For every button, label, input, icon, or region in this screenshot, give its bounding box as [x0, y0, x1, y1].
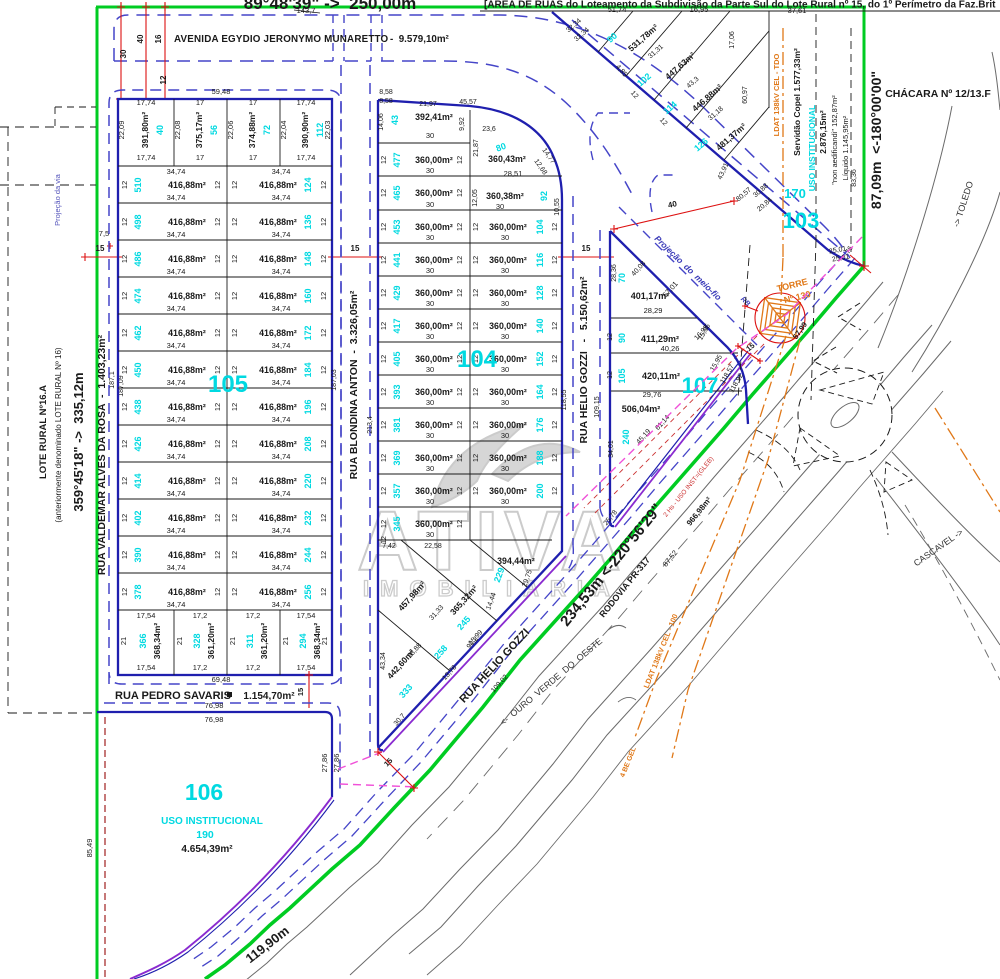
svg-text:114: 114 — [661, 99, 679, 116]
svg-text:104: 104 — [535, 219, 545, 234]
svg-text:12: 12 — [120, 366, 129, 374]
svg-text:105: 105 — [617, 368, 627, 383]
svg-text:416,88m²: 416,88m² — [259, 291, 297, 301]
svg-text:RUA BLONDINA ANTON - 3.326,0: RUA BLONDINA ANTON - 3.326,05m² — [348, 290, 360, 479]
svg-text:10,55: 10,55 — [554, 198, 561, 216]
svg-text:[ÁREA DE RUAS do Loteamento da: [ÁREA DE RUAS do Loteamento da Subdivisã… — [484, 0, 996, 11]
svg-text:30: 30 — [426, 299, 434, 308]
svg-text:17,74: 17,74 — [297, 98, 316, 107]
svg-text:411,29m²: 411,29m² — [641, 334, 679, 344]
svg-text:17,54: 17,54 — [297, 611, 316, 620]
svg-text:-> TOLEDO: -> TOLEDO — [951, 180, 975, 228]
svg-text:89°48'39" -> 250,00m: 89°48'39" -> 250,00m — [244, 0, 417, 13]
svg-text:34,74: 34,74 — [167, 230, 186, 239]
svg-text:416,88m²: 416,88m² — [168, 476, 206, 486]
svg-text:328: 328 — [192, 633, 202, 648]
svg-text:17,74: 17,74 — [137, 153, 156, 162]
svg-text:87,52: 87,52 — [661, 548, 680, 568]
svg-text:22,04: 22,04 — [279, 121, 288, 140]
svg-text:12: 12 — [455, 156, 464, 164]
svg-text:12: 12 — [471, 421, 480, 429]
svg-text:21: 21 — [175, 637, 184, 645]
svg-text:220: 220 — [303, 473, 313, 488]
svg-text:30: 30 — [426, 200, 434, 209]
svg-text:966,98m²: 966,98m² — [685, 495, 714, 528]
svg-text:34,74: 34,74 — [272, 378, 291, 387]
svg-text:450: 450 — [133, 362, 143, 377]
svg-text:7,5: 7,5 — [99, 229, 109, 238]
svg-text:30: 30 — [501, 233, 509, 242]
svg-text:12: 12 — [319, 477, 328, 485]
svg-text:60,97: 60,97 — [742, 86, 749, 104]
svg-text:402: 402 — [133, 510, 143, 525]
svg-text:416,88m²: 416,88m² — [168, 587, 206, 597]
svg-text:34,74: 34,74 — [272, 489, 291, 498]
svg-text:12: 12 — [213, 403, 222, 411]
svg-text:21: 21 — [119, 637, 128, 645]
svg-text:22,08: 22,08 — [173, 121, 182, 140]
svg-text:118,55: 118,55 — [561, 389, 568, 410]
svg-text:30: 30 — [501, 464, 509, 473]
svg-text:12: 12 — [379, 322, 388, 330]
svg-text:80,57: 80,57 — [735, 186, 753, 203]
svg-text:RUA VALDEMAR ALVES DA ROSA -: RUA VALDEMAR ALVES DA ROSA - 1.403,23m² — [96, 334, 108, 575]
svg-text:104: 104 — [457, 346, 498, 373]
svg-text:29,76: 29,76 — [643, 390, 662, 399]
svg-text:453: 453 — [392, 219, 402, 234]
svg-text:416,88m²: 416,88m² — [168, 550, 206, 560]
svg-text:416,88m²: 416,88m² — [168, 328, 206, 338]
svg-text:360,00m²: 360,00m² — [415, 155, 453, 165]
svg-text:244: 244 — [303, 547, 313, 562]
svg-text:12: 12 — [230, 292, 239, 300]
svg-text:22,58: 22,58 — [424, 543, 442, 550]
svg-text:34,74: 34,74 — [272, 415, 291, 424]
svg-text:17,54: 17,54 — [137, 611, 156, 620]
svg-text:34,74: 34,74 — [272, 230, 291, 239]
svg-text:360,38m²: 360,38m² — [486, 191, 524, 201]
svg-text:245: 245 — [455, 614, 472, 632]
svg-text:22,06: 22,06 — [226, 121, 235, 140]
svg-text:109,15: 109,15 — [594, 396, 601, 418]
svg-text:360,00m²: 360,00m² — [415, 321, 453, 331]
svg-text:30: 30 — [501, 299, 509, 308]
svg-text:12: 12 — [455, 322, 464, 330]
svg-text:103: 103 — [783, 208, 820, 233]
svg-text:12: 12 — [213, 477, 222, 485]
svg-text:30: 30 — [496, 202, 504, 211]
svg-text:106: 106 — [185, 779, 223, 805]
svg-text:12: 12 — [230, 440, 239, 448]
svg-text:12: 12 — [213, 181, 222, 189]
svg-text:12: 12 — [455, 520, 464, 528]
svg-text:30: 30 — [501, 398, 509, 407]
svg-text:"non aedificandi" 152,87m²: "non aedificandi" 152,87m² — [830, 95, 839, 185]
svg-text:15: 15 — [96, 244, 105, 253]
svg-text:12: 12 — [550, 355, 559, 363]
svg-text:43,3: 43,3 — [686, 76, 701, 90]
svg-text:148: 148 — [303, 251, 313, 266]
svg-text:21: 21 — [228, 637, 237, 645]
svg-text:12: 12 — [379, 223, 388, 231]
svg-text:140: 140 — [535, 318, 545, 333]
svg-text:12: 12 — [120, 477, 129, 485]
svg-text:34,74: 34,74 — [167, 341, 186, 350]
svg-text:12: 12 — [455, 289, 464, 297]
svg-text:187,03: 187,03 — [331, 369, 338, 391]
svg-text:12: 12 — [213, 292, 222, 300]
svg-text:17,06: 17,06 — [729, 31, 736, 49]
svg-text:360,00m²: 360,00m² — [489, 486, 527, 496]
svg-text:34,74: 34,74 — [272, 563, 291, 572]
svg-text:85,49: 85,49 — [85, 839, 94, 858]
svg-text:12: 12 — [120, 255, 129, 263]
svg-text:21: 21 — [320, 637, 329, 645]
svg-text:CHÁCARA Nº 12/13.F: CHÁCARA Nº 12/13.F — [885, 87, 991, 100]
svg-text:12: 12 — [455, 454, 464, 462]
svg-text:12: 12 — [213, 255, 222, 263]
svg-text:360,00m²: 360,00m² — [489, 321, 527, 331]
svg-text:34,74: 34,74 — [167, 489, 186, 498]
svg-text:30: 30 — [501, 431, 509, 440]
svg-text:34,74: 34,74 — [167, 600, 186, 609]
svg-text:30: 30 — [501, 266, 509, 275]
svg-text:477: 477 — [392, 152, 402, 167]
svg-text:12: 12 — [120, 292, 129, 300]
svg-text:30: 30 — [426, 431, 434, 440]
svg-text:128: 128 — [535, 285, 545, 300]
svg-text:12: 12 — [379, 454, 388, 462]
svg-text:12: 12 — [379, 355, 388, 363]
svg-text:416,88m²: 416,88m² — [259, 365, 297, 375]
svg-text:17,2: 17,2 — [246, 611, 261, 620]
svg-text:92: 92 — [539, 191, 549, 201]
svg-text:360,00m²: 360,00m² — [415, 288, 453, 298]
svg-text:360,00m²: 360,00m² — [415, 188, 453, 198]
svg-text:30: 30 — [426, 166, 434, 175]
svg-text:14,06: 14,06 — [378, 113, 385, 131]
svg-text:187,1: 187,1 — [109, 371, 116, 389]
svg-text:12: 12 — [120, 181, 129, 189]
svg-text:4 BE GEL: 4 BE GEL — [619, 746, 638, 779]
svg-text:12: 12 — [230, 255, 239, 263]
svg-text:390: 390 — [133, 547, 143, 562]
svg-text:12: 12 — [379, 189, 388, 197]
svg-text:ATIVA: ATIVA — [357, 494, 627, 588]
svg-text:390,90m²: 390,90m² — [300, 112, 310, 149]
svg-text:240: 240 — [621, 429, 631, 444]
svg-text:360,00m²: 360,00m² — [415, 420, 453, 430]
svg-text:USO INSTITUCIONAL: USO INSTITUCIONAL — [161, 816, 263, 827]
svg-text:12: 12 — [120, 551, 129, 559]
svg-text:416,88m²: 416,88m² — [168, 180, 206, 190]
svg-text:360,00m²: 360,00m² — [489, 255, 527, 265]
svg-text:8,58: 8,58 — [379, 89, 393, 96]
svg-text:375,17m²: 375,17m² — [194, 112, 204, 149]
svg-text:17: 17 — [196, 98, 204, 107]
svg-text:136: 136 — [303, 214, 313, 229]
svg-text:369: 369 — [392, 450, 402, 465]
svg-text:416,88m²: 416,88m² — [259, 476, 297, 486]
svg-text:16: 16 — [154, 34, 163, 43]
svg-text:2.876,15m²: 2.876,15m² — [818, 110, 828, 154]
svg-text:12: 12 — [607, 333, 614, 341]
svg-text:12: 12 — [319, 440, 328, 448]
svg-text:34,74: 34,74 — [167, 378, 186, 387]
svg-text:76,98: 76,98 — [205, 715, 224, 724]
svg-text:414: 414 — [133, 473, 143, 488]
svg-text:405: 405 — [392, 351, 402, 366]
svg-text:416,88m²: 416,88m² — [259, 550, 297, 560]
svg-text:30: 30 — [426, 233, 434, 242]
svg-text:12: 12 — [213, 329, 222, 337]
svg-text:30: 30 — [501, 332, 509, 341]
svg-text:360,00m²: 360,00m² — [489, 222, 527, 232]
svg-text:30: 30 — [426, 497, 434, 506]
svg-text:12: 12 — [550, 289, 559, 297]
svg-text:17: 17 — [196, 153, 204, 162]
svg-text:80: 80 — [495, 141, 508, 154]
svg-text:70: 70 — [617, 273, 627, 283]
svg-text:12: 12 — [213, 440, 222, 448]
svg-text:12: 12 — [230, 329, 239, 337]
svg-text:12: 12 — [607, 371, 614, 379]
svg-text:17,54: 17,54 — [137, 663, 156, 672]
svg-text:360,00m²: 360,00m² — [415, 486, 453, 496]
svg-text:21,97: 21,97 — [419, 101, 437, 108]
svg-text:378: 378 — [133, 584, 143, 599]
svg-text:72: 72 — [262, 125, 272, 135]
svg-text:345: 345 — [392, 516, 402, 531]
svg-text:22,03: 22,03 — [323, 121, 332, 140]
svg-text:391,80m²: 391,80m² — [140, 112, 150, 149]
svg-text:12: 12 — [120, 403, 129, 411]
svg-text:17: 17 — [249, 153, 257, 162]
svg-text:12: 12 — [319, 218, 328, 226]
svg-text:498: 498 — [133, 214, 143, 229]
svg-text:34,74: 34,74 — [167, 415, 186, 424]
svg-text:30: 30 — [426, 131, 434, 140]
svg-text:34,74: 34,74 — [272, 304, 291, 313]
svg-text:28,88: 28,88 — [406, 642, 423, 660]
svg-text:12: 12 — [471, 454, 480, 462]
svg-text:Projeção da via: Projeção da via — [53, 173, 62, 226]
svg-text:190: 190 — [196, 829, 214, 841]
svg-text:12: 12 — [319, 366, 328, 374]
svg-text:360,00m²: 360,00m² — [415, 255, 453, 265]
svg-text:USO INSTITUCIONAL: USO INSTITUCIONAL — [807, 105, 817, 191]
svg-text:462: 462 — [133, 325, 143, 340]
svg-text:126: 126 — [692, 136, 710, 153]
svg-text:12: 12 — [213, 588, 222, 596]
svg-text:164: 164 — [535, 384, 545, 399]
svg-text:208: 208 — [303, 436, 313, 451]
svg-text:12: 12 — [471, 223, 480, 231]
svg-text:447,63m²: 447,63m² — [663, 50, 697, 82]
svg-text:360,00m²: 360,00m² — [489, 288, 527, 298]
svg-text:17,2: 17,2 — [193, 611, 208, 620]
svg-text:12: 12 — [550, 454, 559, 462]
svg-text:12: 12 — [379, 520, 388, 528]
svg-text:12: 12 — [159, 75, 168, 84]
svg-text:12: 12 — [455, 487, 464, 495]
svg-text:12: 12 — [230, 551, 239, 559]
svg-text:RUA HELIO GOZZI - 5.150,62: RUA HELIO GOZZI - 5.150,62m² — [578, 276, 590, 444]
svg-text:Líquido 1.145,95m²: Líquido 1.145,95m² — [841, 115, 850, 180]
svg-text:34,74: 34,74 — [272, 267, 291, 276]
svg-text:12: 12 — [658, 117, 668, 128]
svg-text:90: 90 — [605, 31, 619, 45]
svg-text:361,20m²: 361,20m² — [259, 623, 269, 660]
svg-text:12: 12 — [629, 90, 639, 101]
svg-text:12: 12 — [319, 181, 328, 189]
svg-text:333: 333 — [397, 682, 414, 700]
svg-text:12: 12 — [230, 181, 239, 189]
svg-text:40,08: 40,08 — [630, 260, 647, 278]
svg-text:40: 40 — [136, 34, 145, 43]
svg-text:12: 12 — [120, 440, 129, 448]
svg-text:360,43m²: 360,43m² — [488, 154, 526, 164]
svg-text:12: 12 — [455, 189, 464, 197]
svg-text:- 9.579,10m²: - 9.579,10m² — [390, 34, 450, 45]
svg-text:416,88m²: 416,88m² — [259, 513, 297, 523]
svg-text:AVENIDA EGYDIO JERONYMO MUNARE: AVENIDA EGYDIO JERONYMO MUNARETTO — [174, 34, 389, 45]
svg-text:416,88m²: 416,88m² — [168, 254, 206, 264]
svg-text:105: 105 — [208, 371, 248, 398]
svg-text:15: 15 — [582, 244, 591, 253]
svg-text:12: 12 — [471, 256, 480, 264]
svg-text:176: 176 — [535, 417, 545, 432]
svg-text:429: 429 — [392, 285, 402, 300]
svg-text:34,74: 34,74 — [167, 563, 186, 572]
svg-text:90: 90 — [617, 333, 627, 343]
svg-text:12: 12 — [319, 514, 328, 522]
svg-text:12: 12 — [213, 218, 222, 226]
svg-text:27,86: 27,86 — [320, 754, 329, 773]
svg-text:Servidão Copel 1.577,33m²: Servidão Copel 1.577,33m² — [792, 48, 802, 156]
svg-text:34,74: 34,74 — [167, 193, 186, 202]
svg-text:12: 12 — [230, 218, 239, 226]
svg-text:416,88m²: 416,88m² — [168, 217, 206, 227]
svg-text:510: 510 — [133, 177, 143, 192]
svg-text:474: 474 — [133, 288, 143, 303]
svg-text:12: 12 — [550, 256, 559, 264]
svg-text:311: 311 — [245, 634, 255, 649]
svg-text:116: 116 — [535, 253, 545, 268]
svg-text:12: 12 — [213, 551, 222, 559]
svg-text:12: 12 — [455, 223, 464, 231]
svg-text:76,98: 76,98 — [205, 701, 224, 710]
svg-text:12: 12 — [379, 156, 388, 164]
svg-text:360,00m²: 360,00m² — [415, 387, 453, 397]
svg-text:12: 12 — [230, 588, 239, 596]
svg-text:12: 12 — [379, 289, 388, 297]
svg-text:357: 357 — [392, 483, 402, 498]
svg-text:359°45'18" -> 335,12m: 359°45'18" -> 335,12m — [71, 372, 86, 511]
svg-text:34,74: 34,74 — [167, 452, 186, 461]
svg-text:416,88m²: 416,88m² — [259, 439, 297, 449]
svg-text:34,74: 34,74 — [272, 341, 291, 350]
svg-text:394,44m²: 394,44m² — [497, 556, 535, 566]
svg-text:87,09m <-180°00'00": 87,09m <-180°00'00" — [868, 71, 884, 209]
svg-text:393: 393 — [392, 384, 402, 399]
svg-text:416,88m²: 416,88m² — [259, 254, 297, 264]
svg-text:30: 30 — [501, 365, 509, 374]
svg-text:30: 30 — [426, 332, 434, 341]
svg-text:360,00m²: 360,00m² — [489, 453, 527, 463]
svg-text:12: 12 — [550, 421, 559, 429]
svg-text:28,51: 28,51 — [504, 169, 523, 178]
svg-text:196: 196 — [303, 399, 313, 414]
svg-text:28,29: 28,29 — [644, 306, 663, 315]
svg-text:360,00m²: 360,00m² — [415, 519, 453, 529]
svg-text:374,88m²: 374,88m² — [247, 112, 257, 149]
svg-text:LDAT 138kV CEL - TDO: LDAT 138kV CEL - TDO — [772, 54, 781, 137]
svg-text:15: 15 — [351, 244, 360, 253]
svg-text:360,00m²: 360,00m² — [489, 420, 527, 430]
svg-text:12: 12 — [455, 421, 464, 429]
svg-text:59,48: 59,48 — [212, 87, 231, 96]
svg-text:360,00m²: 360,00m² — [415, 453, 453, 463]
svg-text:9,92: 9,92 — [459, 117, 466, 131]
svg-text:381: 381 — [392, 417, 402, 432]
svg-text:360,00m²: 360,00m² — [415, 354, 453, 364]
svg-text:12: 12 — [379, 256, 388, 264]
svg-text:40,26: 40,26 — [661, 344, 680, 353]
svg-text:(anteriormente denominado LOTE: (anteriormente denominado LOTE RURAL Nº … — [54, 347, 63, 522]
svg-text:416,88m²: 416,88m² — [259, 587, 297, 597]
svg-text:17,74: 17,74 — [297, 153, 316, 162]
svg-text:12: 12 — [319, 329, 328, 337]
svg-text:17,54: 17,54 — [297, 663, 316, 672]
svg-text:12: 12 — [550, 487, 559, 495]
svg-text:12: 12 — [319, 292, 328, 300]
svg-text:15: 15 — [296, 688, 305, 696]
svg-text:416,88m²: 416,88m² — [259, 328, 297, 338]
svg-text:LOTE RURAL Nº16.A: LOTE RURAL Nº16.A — [38, 385, 49, 479]
svg-text:21: 21 — [281, 637, 290, 645]
svg-text:1.154,70m²: 1.154,70m² — [243, 691, 295, 702]
svg-text:30: 30 — [426, 365, 434, 374]
svg-text:22,09: 22,09 — [117, 121, 126, 140]
svg-text:417: 417 — [392, 318, 402, 333]
svg-text:LDAT 138kV CEL - 100: LDAT 138kV CEL - 100 — [642, 613, 680, 690]
svg-text:416,88m²: 416,88m² — [168, 291, 206, 301]
svg-text:401,17m²: 401,17m² — [631, 291, 670, 301]
svg-text:17: 17 — [249, 98, 257, 107]
svg-text:61,14: 61,14 — [654, 414, 671, 432]
svg-text:34,74: 34,74 — [272, 452, 291, 461]
svg-text:360,00m²: 360,00m² — [489, 387, 527, 397]
svg-text:12: 12 — [230, 477, 239, 485]
svg-text:481,37m²: 481,37m² — [714, 121, 748, 153]
svg-text:43,91: 43,91 — [717, 162, 731, 181]
svg-text:170: 170 — [784, 186, 806, 201]
svg-text:40: 40 — [667, 199, 678, 210]
svg-text:232: 232 — [303, 510, 313, 525]
svg-text:34,74: 34,74 — [272, 600, 291, 609]
svg-text:12: 12 — [379, 421, 388, 429]
svg-text:31,33: 31,33 — [428, 604, 445, 622]
svg-text:56: 56 — [209, 125, 219, 135]
svg-text:12: 12 — [230, 403, 239, 411]
svg-text:20,84: 20,84 — [756, 196, 774, 213]
svg-text:34,74: 34,74 — [167, 267, 186, 276]
svg-text:12: 12 — [471, 289, 480, 297]
svg-text:12: 12 — [471, 487, 480, 495]
svg-text:12: 12 — [319, 403, 328, 411]
svg-text:12: 12 — [120, 329, 129, 337]
